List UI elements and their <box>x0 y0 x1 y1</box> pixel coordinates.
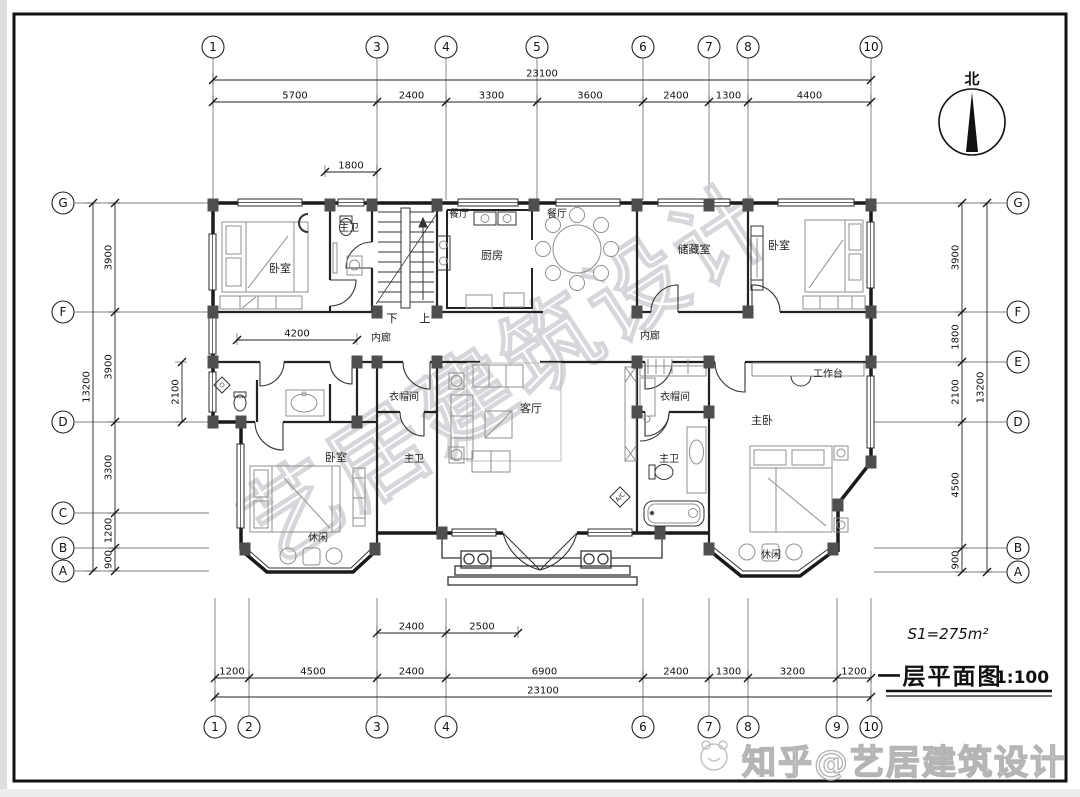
column <box>208 356 219 369</box>
dim-label: 6900 <box>532 667 557 678</box>
stair-stringer <box>401 208 410 308</box>
kitchen-table <box>466 295 492 308</box>
column <box>743 199 754 212</box>
grid-bubble-label-3: 3 <box>373 720 381 734</box>
nightstand <box>834 446 848 460</box>
kitchen-sink <box>498 212 516 225</box>
entry-double-door <box>503 533 577 570</box>
pillow <box>849 254 861 280</box>
vanity <box>687 427 706 493</box>
column <box>833 499 844 512</box>
entrance-porch <box>442 533 662 585</box>
grid-bubble-label-4: 4 <box>442 720 450 734</box>
grid-bubble-label-8: 8 <box>744 40 752 54</box>
shower-drain <box>220 383 224 387</box>
room-label: 内廊 <box>371 331 391 344</box>
wardrobe <box>220 296 302 309</box>
grid-bubble-label-9: 9 <box>833 720 841 734</box>
porch-step <box>448 577 637 585</box>
vanity-sink <box>291 394 317 412</box>
bed-detail <box>750 468 832 532</box>
grid-bubble-label-10: 10 <box>863 40 878 54</box>
column <box>632 306 643 319</box>
room-label: 衣帽间 <box>389 390 419 403</box>
column <box>236 416 247 429</box>
dining-chair <box>604 242 619 257</box>
room-label: 休闲 <box>761 548 781 561</box>
dim-label: 1800 <box>951 324 962 349</box>
bathtub-inner <box>648 504 700 523</box>
grid-bubble-label-E: E <box>1014 355 1022 369</box>
room-label: 储藏室 <box>678 242 711 256</box>
grid-bubble-label-D: D <box>58 415 67 429</box>
room-label: 卧室 <box>768 238 790 252</box>
grid-bubble-label-3: 3 <box>373 40 381 54</box>
floor-plan-drawing: 1345678101234678910GFDCBAGFEDBA 23100570… <box>0 0 1080 797</box>
dim-label: 2400 <box>663 91 688 102</box>
stair-down-label: 下 <box>387 312 398 325</box>
column <box>632 356 643 369</box>
dim-label: 13200 <box>82 371 93 403</box>
room-label: 卧室 <box>269 261 291 275</box>
column <box>632 406 643 419</box>
toilet <box>655 465 673 480</box>
grid-bubble-label-6: 6 <box>639 40 647 54</box>
vanity-sink <box>690 440 704 464</box>
room-label: 客厅 <box>520 401 542 415</box>
grid-bubble-label-G: G <box>1013 196 1022 210</box>
column <box>704 406 715 419</box>
column <box>432 199 443 212</box>
column <box>240 543 251 556</box>
grid-bubble-label-B: B <box>1014 541 1022 555</box>
dim-label: 1200 <box>219 667 244 678</box>
dining-chair <box>570 208 585 223</box>
grid-bubble-label-7: 7 <box>705 40 713 54</box>
room-label: 内廊 <box>640 329 660 342</box>
footer-watermark: 知乎@艺居建筑设计 <box>701 741 1066 783</box>
dim-label: 1300 <box>716 667 741 678</box>
staircase <box>376 208 438 308</box>
pillow <box>849 224 861 250</box>
north-label: 北 <box>964 70 979 88</box>
room-label: 主卫 <box>404 453 424 465</box>
bed-detail <box>809 220 845 292</box>
column <box>866 356 877 369</box>
sink-bowl <box>503 215 511 223</box>
dim-label: 1300 <box>716 91 741 102</box>
dining-chair <box>536 242 551 257</box>
room-label: 卧室 <box>325 450 347 464</box>
title-block: S1=275m² 一层平面图 1:100 <box>878 625 1053 696</box>
dining-chair <box>594 266 609 281</box>
tub-faucet <box>650 511 654 515</box>
room-label: 休闲 <box>308 531 328 544</box>
grid-bubble-label-F: F <box>1015 305 1022 319</box>
dim-label: 3900 <box>104 354 115 379</box>
bed-detail <box>246 222 294 292</box>
dim-label: 4500 <box>300 667 325 678</box>
dining-chair <box>570 276 585 291</box>
room-label: 主卫 <box>339 222 359 234</box>
kitchen-sink <box>474 212 496 225</box>
dim-label: 2500 <box>469 622 494 633</box>
column <box>866 199 877 212</box>
column <box>866 456 877 469</box>
dining-chair <box>546 266 561 281</box>
column <box>432 306 443 319</box>
bed <box>750 446 832 532</box>
dim-label: 2400 <box>399 667 424 678</box>
mascot-doodle-icon <box>701 744 727 770</box>
grid-bubble-label-G: G <box>58 196 67 210</box>
pillow <box>226 226 241 254</box>
footer-watermark-text: 知乎@艺居建筑设计 <box>742 743 1066 783</box>
room-label: 主卧 <box>751 414 773 427</box>
column <box>208 306 219 319</box>
column <box>208 199 219 212</box>
grid-bubble-label-6: 6 <box>639 720 647 734</box>
plan-title: 一层平面图 <box>878 664 1003 690</box>
dim-label: 23100 <box>527 686 559 697</box>
room-label: 工作台 <box>813 367 843 380</box>
grid-bubble-label-2: 2 <box>245 720 253 734</box>
grid-bubble-label-A: A <box>1014 565 1023 579</box>
column <box>529 199 540 212</box>
desk-chair <box>791 376 811 386</box>
dining-chair <box>594 218 609 233</box>
dim-label: 3900 <box>951 245 962 270</box>
north-needle <box>966 92 978 152</box>
radiator <box>333 243 337 273</box>
dim-label: 2400 <box>663 667 688 678</box>
dim-label: 23100 <box>526 69 558 80</box>
room-label: 餐厅 <box>547 207 567 220</box>
basin <box>299 214 308 232</box>
nightstand <box>834 518 848 532</box>
room-label: 厨房 <box>481 249 503 262</box>
grid-bubble-label-4: 4 <box>442 40 450 54</box>
room-label: 衣帽间 <box>660 390 690 403</box>
column <box>352 356 363 369</box>
plan-scale: 1:100 <box>995 668 1049 688</box>
toilet-tank <box>649 465 655 479</box>
dim-label: 900 <box>951 550 962 569</box>
nightstand-lamp <box>837 449 845 457</box>
column <box>828 543 839 556</box>
column <box>372 306 383 319</box>
column <box>352 416 363 429</box>
column <box>437 527 448 540</box>
leisure-chair <box>786 544 802 560</box>
dim-label: 2400 <box>399 622 424 633</box>
pillow <box>792 450 824 465</box>
dim-label: 1800 <box>338 161 363 172</box>
dim-label: 1200 <box>841 667 866 678</box>
tub-drain <box>689 509 698 518</box>
column <box>208 416 219 429</box>
dim-label: 3300 <box>479 91 504 102</box>
column <box>370 543 381 556</box>
grid-bubble-label-D: D <box>1013 415 1022 429</box>
pillow <box>754 450 786 465</box>
area-note: S1=275m² <box>908 625 989 643</box>
column <box>704 543 715 556</box>
dim-label: 2400 <box>399 91 424 102</box>
dim-label: 3300 <box>104 455 115 480</box>
dim-label: 2100 <box>171 379 182 404</box>
column <box>704 199 715 212</box>
column <box>372 356 383 369</box>
grid-bubble-label-C: C <box>59 506 67 520</box>
dim-label: 3600 <box>577 91 602 102</box>
sink-bowl <box>481 215 489 223</box>
dim-label: 4500 <box>951 472 962 497</box>
wardrobe-detail <box>240 296 276 309</box>
dim-label: 3900 <box>104 245 115 270</box>
work-desk <box>752 363 864 376</box>
room-label: 主卫 <box>659 453 679 465</box>
window-seat <box>803 296 865 309</box>
window-seat-detail <box>820 296 852 309</box>
bed <box>222 222 308 292</box>
dim-label: 3200 <box>780 667 805 678</box>
dim-label: 900 <box>104 550 115 569</box>
column <box>432 356 443 369</box>
dim-label: 2100 <box>951 379 962 404</box>
column <box>866 306 877 319</box>
grid-bubble-label-B: B <box>59 541 67 555</box>
grid-bubble-label-7: 7 <box>705 720 713 734</box>
dim-label: 13200 <box>976 372 987 404</box>
grid-bubble-label-1: 1 <box>211 720 219 734</box>
grid-bubble-label-8: 8 <box>744 720 752 734</box>
column <box>704 356 715 369</box>
column <box>367 199 378 212</box>
floor-plan-page: 1345678101234678910GFDCBAGFEDBA 23100570… <box>0 0 1080 797</box>
room-label: 餐厅 <box>449 207 469 220</box>
dim-label: 4400 <box>797 91 822 102</box>
dim-label: 4200 <box>284 329 309 340</box>
north-arrow: 北 <box>939 70 1005 155</box>
mascot-mouth <box>708 758 720 761</box>
column <box>632 199 643 212</box>
column <box>325 199 336 212</box>
ac-tag: A/C <box>610 487 630 507</box>
column <box>743 306 754 319</box>
grid-bubble-label-1: 1 <box>209 40 217 54</box>
dim-label: 5700 <box>282 91 307 102</box>
stair-up-label: 上 <box>420 312 431 325</box>
grid-bubble-label-10: 10 <box>863 720 878 734</box>
leisure-chair <box>739 544 755 560</box>
column <box>655 527 666 540</box>
dim-label: 1200 <box>104 518 115 543</box>
grid-bubble-label-A: A <box>59 564 68 578</box>
pillow <box>226 258 241 286</box>
diagonal-watermark: 艺居建筑设计 <box>223 159 797 586</box>
grid-bubble-label-5: 5 <box>533 40 541 54</box>
grid-bubble-label-F: F <box>60 305 67 319</box>
